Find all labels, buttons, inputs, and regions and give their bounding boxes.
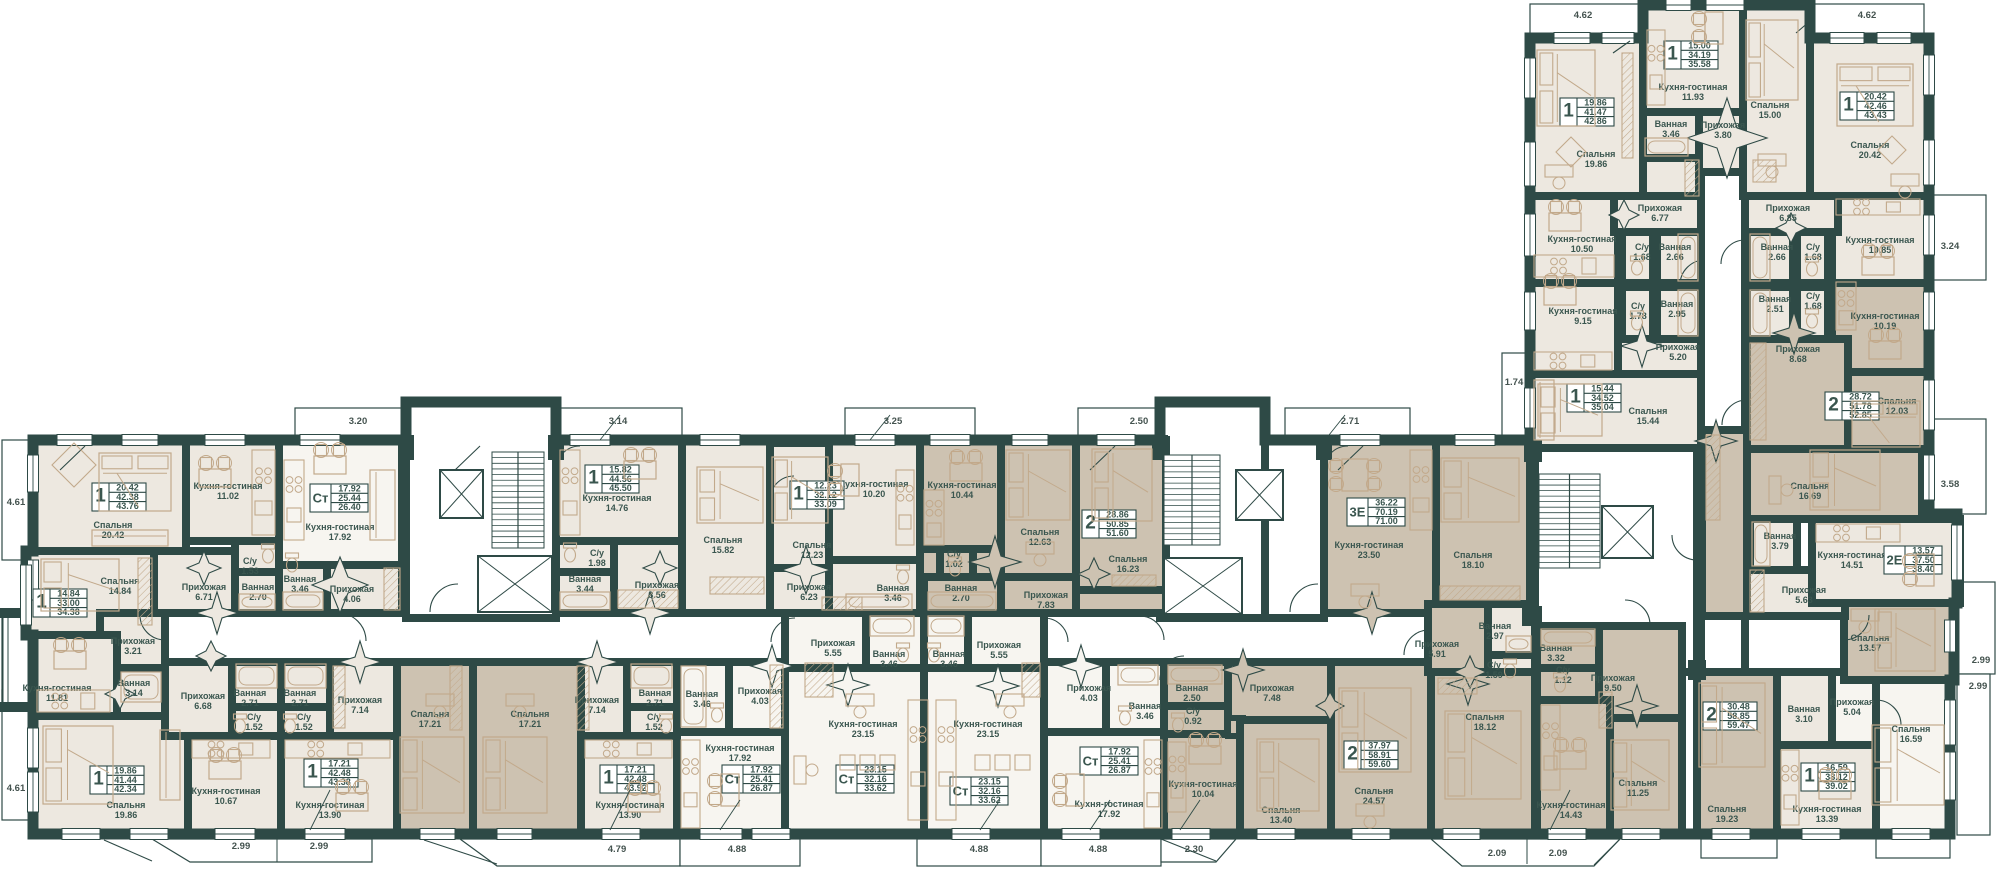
svg-text:Кухня-гостиная: Кухня-гостиная: [23, 683, 92, 693]
svg-text:3.14: 3.14: [125, 688, 143, 698]
svg-text:14.43: 14.43: [1560, 810, 1583, 820]
svg-text:Спальня: Спальня: [107, 800, 146, 810]
svg-text:9.15: 9.15: [1574, 316, 1592, 326]
svg-text:5.04: 5.04: [1843, 707, 1861, 717]
svg-text:45.50: 45.50: [609, 483, 632, 493]
svg-text:17.92: 17.92: [329, 532, 352, 542]
svg-text:Ванная: Ванная: [1540, 643, 1573, 653]
svg-text:1: 1: [603, 768, 614, 789]
svg-text:2: 2: [1347, 744, 1358, 765]
svg-text:Кухня-гостиная: Кухня-гостиная: [1659, 82, 1728, 92]
svg-text:2.99: 2.99: [310, 841, 329, 852]
svg-text:34.38: 34.38: [57, 607, 80, 617]
svg-text:1: 1: [588, 468, 599, 489]
svg-text:Ст: Ст: [1083, 754, 1099, 769]
svg-text:Спальня: Спальня: [1577, 149, 1616, 159]
svg-text:Ст: Ст: [313, 491, 329, 506]
svg-text:4.88: 4.88: [1089, 844, 1108, 855]
svg-text:5.55: 5.55: [824, 648, 842, 658]
svg-text:Спальня: Спальня: [1454, 550, 1493, 560]
svg-text:С/у: С/у: [590, 548, 604, 558]
svg-text:2.09: 2.09: [1549, 848, 1568, 859]
svg-text:7.48: 7.48: [1263, 693, 1281, 703]
svg-text:1: 1: [93, 769, 104, 790]
svg-text:17.21: 17.21: [519, 719, 542, 729]
svg-text:Спальня: Спальня: [1629, 406, 1668, 416]
svg-text:4.03: 4.03: [751, 696, 769, 706]
svg-text:Ванная: Ванная: [1764, 531, 1797, 541]
svg-text:1: 1: [307, 762, 318, 783]
svg-text:Ванная: Ванная: [1788, 704, 1821, 714]
svg-text:С/у: С/у: [247, 712, 261, 722]
svg-text:Прихожая: Прихожая: [1656, 342, 1700, 352]
svg-text:4.03: 4.03: [1080, 693, 1098, 703]
svg-text:2: 2: [1085, 513, 1096, 534]
svg-text:7.14: 7.14: [588, 705, 606, 715]
svg-text:6.23: 6.23: [800, 592, 818, 602]
svg-text:Кухня-гостиная: Кухня-гостиная: [829, 719, 898, 729]
svg-text:Прихожая: Прихожая: [635, 580, 679, 590]
svg-text:4.88: 4.88: [970, 844, 989, 855]
svg-text:Кухня-гостиная: Кухня-гостиная: [1851, 311, 1920, 321]
svg-text:Спальня: Спальня: [1851, 633, 1890, 643]
svg-text:18.10: 18.10: [1462, 560, 1485, 570]
svg-text:13.39: 13.39: [1816, 814, 1839, 824]
svg-text:3Е: 3Е: [1350, 505, 1366, 520]
svg-text:С/у: С/у: [297, 712, 311, 722]
svg-text:1.53: 1.53: [241, 566, 259, 576]
svg-text:3.46: 3.46: [693, 699, 711, 709]
svg-text:2.99: 2.99: [1972, 655, 1991, 666]
svg-text:Ст: Ст: [953, 784, 969, 799]
svg-text:11.02: 11.02: [217, 491, 239, 501]
svg-text:Кухня-гостиная: Кухня-гостиная: [1537, 800, 1606, 810]
svg-text:Кухня-гостиная: Кухня-гостиная: [840, 479, 909, 489]
svg-text:Спальня: Спальня: [1751, 100, 1790, 110]
svg-text:Ванная: Ванная: [639, 688, 672, 698]
svg-text:4.62: 4.62: [1574, 10, 1593, 21]
svg-text:11.93: 11.93: [1682, 92, 1704, 102]
svg-text:1.52: 1.52: [245, 722, 263, 732]
svg-text:3.20: 3.20: [349, 416, 368, 427]
svg-text:3.58: 3.58: [1941, 479, 1960, 490]
svg-text:4.62: 4.62: [1858, 10, 1877, 21]
svg-text:6.77: 6.77: [1651, 213, 1669, 223]
svg-text:Прихожая: Прихожая: [1591, 673, 1635, 683]
svg-text:Ванная: Ванная: [118, 678, 151, 688]
svg-text:17.92: 17.92: [729, 753, 752, 763]
svg-text:С/у: С/у: [647, 712, 661, 722]
svg-text:Спальня: Спальня: [1619, 778, 1658, 788]
svg-text:Прихожая: Прихожая: [977, 640, 1021, 650]
svg-text:4.79: 4.79: [608, 844, 627, 855]
svg-text:6.85: 6.85: [1779, 213, 1797, 223]
svg-text:4.88: 4.88: [728, 844, 747, 855]
svg-text:23.50: 23.50: [1358, 550, 1381, 560]
svg-text:2.99: 2.99: [1969, 681, 1988, 692]
svg-text:Кухня-гостиная: Кухня-гостиная: [296, 800, 365, 810]
svg-text:Ванная: Ванная: [1661, 299, 1694, 309]
svg-text:Кухня-гостиная: Кухня-гостиная: [583, 493, 652, 503]
svg-text:1: 1: [793, 484, 804, 505]
svg-text:4.06: 4.06: [343, 594, 361, 604]
svg-text:Ст: Ст: [839, 772, 855, 787]
svg-text:Прихожая: Прихожая: [1830, 697, 1874, 707]
svg-text:14.76: 14.76: [606, 503, 629, 513]
svg-text:14.51: 14.51: [1841, 560, 1864, 570]
svg-text:1.98: 1.98: [588, 558, 606, 568]
svg-text:Ванная: Ванная: [234, 688, 267, 698]
svg-text:2.71: 2.71: [241, 698, 259, 708]
svg-text:35.58: 35.58: [1688, 59, 1711, 69]
svg-text:Кухня-гостиная: Кухня-гостиная: [1818, 550, 1887, 560]
svg-text:Спальня: Спальня: [1355, 786, 1394, 796]
svg-text:Спальня: Спальня: [94, 520, 133, 530]
svg-text:Кухня-гостиная: Кухня-гостиная: [1793, 804, 1862, 814]
svg-text:Спальня: Спальня: [704, 535, 743, 545]
svg-text:15.44: 15.44: [1637, 416, 1660, 426]
svg-text:5.91: 5.91: [1428, 649, 1446, 659]
svg-text:Спальня: Спальня: [101, 576, 140, 586]
svg-text:1.59: 1.59: [1485, 670, 1503, 680]
svg-text:3.46: 3.46: [1136, 711, 1154, 721]
svg-text:11.25: 11.25: [1627, 788, 1649, 798]
svg-text:23.15: 23.15: [977, 729, 1000, 739]
svg-text:5.55: 5.55: [990, 650, 1008, 660]
svg-text:Ванная: Ванная: [1761, 242, 1794, 252]
svg-text:14.84: 14.84: [109, 586, 132, 596]
svg-text:Ванная: Ванная: [1759, 294, 1792, 304]
svg-text:26.87: 26.87: [1108, 765, 1131, 775]
svg-text:3.25: 3.25: [884, 416, 903, 427]
svg-text:20.42: 20.42: [102, 530, 125, 540]
svg-text:43.43: 43.43: [1864, 110, 1887, 120]
svg-text:19.23: 19.23: [1716, 814, 1739, 824]
svg-text:5.63: 5.63: [1795, 595, 1813, 605]
svg-text:Спальня: Спальня: [411, 709, 450, 719]
svg-text:12.23: 12.23: [801, 550, 824, 560]
svg-text:Спальня: Спальня: [793, 540, 832, 550]
svg-text:7.83: 7.83: [1037, 600, 1055, 610]
svg-text:3.80: 3.80: [1714, 130, 1732, 140]
svg-text:2.09: 2.09: [1488, 848, 1507, 859]
svg-text:20.42: 20.42: [1859, 150, 1882, 160]
svg-text:Ванная: Ванная: [569, 574, 602, 584]
svg-text:0.92: 0.92: [1184, 716, 1202, 726]
svg-text:2.50: 2.50: [1130, 416, 1149, 427]
svg-text:2: 2: [1828, 395, 1839, 416]
svg-text:59.60: 59.60: [1368, 759, 1391, 769]
svg-text:71.00: 71.00: [1375, 516, 1398, 526]
svg-text:2.95: 2.95: [1668, 309, 1686, 319]
svg-text:4.61: 4.61: [7, 783, 26, 794]
svg-text:23.15: 23.15: [852, 729, 875, 739]
svg-text:26.40: 26.40: [338, 502, 361, 512]
svg-text:Ванная: Ванная: [1655, 119, 1688, 129]
svg-text:Ванная: Ванная: [1479, 621, 1512, 631]
svg-text:33.09: 33.09: [814, 499, 837, 509]
svg-text:33.62: 33.62: [864, 783, 887, 793]
svg-text:59.47: 59.47: [1727, 720, 1750, 730]
svg-text:Кухня-гостиная: Кухня-гостиная: [954, 719, 1023, 729]
svg-text:Ванная: Ванная: [284, 688, 317, 698]
svg-text:52.85: 52.85: [1849, 410, 1872, 420]
svg-text:11.81: 11.81: [46, 693, 68, 703]
svg-text:С/у: С/у: [1631, 301, 1645, 311]
svg-text:Спальня: Спальня: [511, 709, 550, 719]
svg-text:С/у: С/у: [1806, 242, 1820, 252]
svg-text:2.66: 2.66: [1768, 252, 1786, 262]
svg-text:3.32: 3.32: [1547, 653, 1565, 663]
svg-text:1: 1: [1804, 766, 1815, 787]
svg-text:Спальня: Спальня: [1262, 805, 1301, 815]
svg-text:Ванная: Ванная: [242, 582, 275, 592]
svg-text:1.74: 1.74: [1505, 377, 1524, 388]
svg-text:Спальня: Спальня: [1109, 554, 1148, 564]
svg-text:26.87: 26.87: [750, 783, 773, 793]
svg-text:6.68: 6.68: [194, 701, 212, 711]
svg-text:Прихожая: Прихожая: [1067, 683, 1111, 693]
svg-text:10.04: 10.04: [1192, 789, 1215, 799]
svg-text:Ванная: Ванная: [686, 689, 719, 699]
svg-text:15.00: 15.00: [1759, 110, 1782, 120]
svg-text:19.86: 19.86: [115, 810, 138, 820]
svg-text:Прихожая: Прихожая: [1782, 585, 1826, 595]
svg-text:Прихожая: Прихожая: [1766, 203, 1810, 213]
svg-text:10.50: 10.50: [1571, 244, 1594, 254]
svg-text:С/у: С/у: [243, 556, 257, 566]
svg-text:6.71: 6.71: [195, 592, 213, 602]
svg-text:15.82: 15.82: [712, 545, 735, 555]
svg-text:3.46: 3.46: [940, 659, 958, 669]
svg-text:3.24: 3.24: [1941, 241, 1960, 252]
svg-text:2.50: 2.50: [1183, 693, 1201, 703]
svg-text:2.51: 2.51: [1766, 304, 1784, 314]
svg-text:13.40: 13.40: [1270, 815, 1293, 825]
svg-text:10.44: 10.44: [951, 490, 974, 500]
svg-text:С/у: С/у: [1806, 291, 1820, 301]
svg-text:2.99: 2.99: [232, 841, 251, 852]
svg-text:51.60: 51.60: [1106, 528, 1129, 538]
svg-text:1: 1: [1667, 44, 1678, 65]
svg-text:Ванная: Ванная: [873, 649, 906, 659]
svg-text:Ванная: Ванная: [877, 583, 910, 593]
svg-text:18.12: 18.12: [1474, 722, 1497, 732]
svg-text:С/у: С/у: [1487, 660, 1501, 670]
svg-text:16.23: 16.23: [1117, 564, 1140, 574]
svg-text:Кухня-гостиная: Кухня-гостиная: [1075, 799, 1144, 809]
svg-text:Кухня-гостиная: Кухня-гостиная: [1335, 540, 1404, 550]
svg-text:2.97: 2.97: [1486, 631, 1504, 641]
svg-text:10.20: 10.20: [863, 489, 886, 499]
svg-text:С/у: С/у: [1635, 242, 1649, 252]
svg-text:3.46: 3.46: [880, 659, 898, 669]
svg-text:Кухня-гостиная: Кухня-гостиная: [192, 786, 261, 796]
svg-text:Кухня-гостиная: Кухня-гостиная: [1548, 234, 1617, 244]
svg-text:Спальня: Спальня: [1708, 804, 1747, 814]
svg-text:8.68: 8.68: [1789, 354, 1807, 364]
svg-text:Прихожая: Прихожая: [1250, 683, 1294, 693]
svg-text:Ванная: Ванная: [284, 574, 317, 584]
svg-text:С/у: С/у: [1186, 706, 1200, 716]
svg-text:7.14: 7.14: [351, 705, 369, 715]
svg-text:Прихожая: Прихожая: [1024, 590, 1068, 600]
svg-text:3.79: 3.79: [1771, 541, 1789, 551]
svg-text:Кухня-гостиная: Кухня-гостиная: [1549, 306, 1618, 316]
svg-text:1: 1: [36, 592, 47, 613]
svg-text:42.34: 42.34: [114, 784, 137, 794]
svg-text:Прихожая: Прихожая: [1776, 344, 1820, 354]
svg-text:Прихожая: Прихожая: [182, 582, 226, 592]
svg-text:43.38: 43.38: [328, 777, 351, 787]
svg-text:Спальня: Спальня: [1021, 527, 1060, 537]
svg-text:1: 1: [95, 486, 106, 507]
svg-text:2.71: 2.71: [646, 698, 664, 708]
svg-text:Кухня-гостиная: Кухня-гостиная: [596, 800, 665, 810]
svg-text:Прихожая: Прихожая: [111, 636, 155, 646]
svg-text:2Е: 2Е: [1887, 553, 1903, 568]
svg-text:Кухня-гостиная: Кухня-гостиная: [306, 522, 375, 532]
svg-text:16.59: 16.59: [1900, 734, 1923, 744]
svg-text:1: 1: [1843, 95, 1854, 116]
svg-text:Кухня-гостиная: Кухня-гостиная: [1846, 235, 1915, 245]
svg-text:Ванная: Ванная: [1129, 701, 1162, 711]
svg-text:Прихожая: Прихожая: [330, 584, 374, 594]
svg-text:5.20: 5.20: [1669, 352, 1687, 362]
svg-text:2.71: 2.71: [1341, 416, 1360, 427]
svg-text:Прихожая: Прихожая: [181, 691, 225, 701]
svg-text:4.61: 4.61: [7, 497, 26, 508]
svg-text:19.86: 19.86: [1585, 159, 1608, 169]
svg-text:1.52: 1.52: [295, 722, 313, 732]
svg-text:Прихожая: Прихожая: [811, 638, 855, 648]
svg-text:17.21: 17.21: [419, 719, 442, 729]
svg-text:Ванная: Ванная: [1659, 242, 1692, 252]
svg-text:1: 1: [1563, 101, 1574, 122]
svg-text:3.21: 3.21: [124, 646, 142, 656]
svg-text:Прихожая: Прихожая: [1701, 120, 1745, 130]
svg-text:10.67: 10.67: [215, 796, 238, 806]
svg-text:Кухня-гостиная: Кухня-гостиная: [706, 743, 775, 753]
svg-text:3.10: 3.10: [1795, 714, 1813, 724]
svg-text:Прихожая: Прихожая: [1415, 639, 1459, 649]
svg-text:Прихожая: Прихожая: [787, 582, 831, 592]
svg-text:2.71: 2.71: [291, 698, 309, 708]
svg-text:Прихожая: Прихожая: [1638, 203, 1682, 213]
